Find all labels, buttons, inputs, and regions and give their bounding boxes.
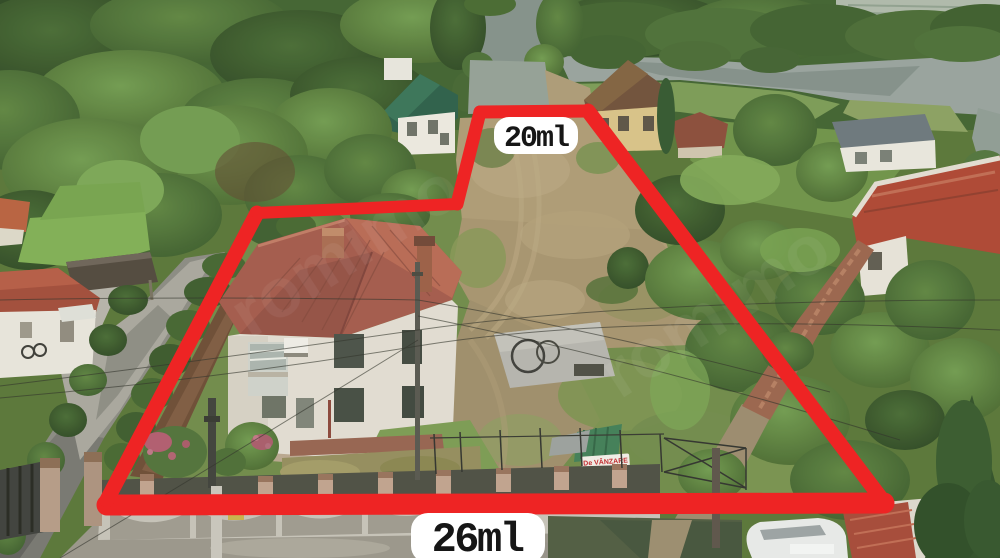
svg-text:20ml: 20ml [504, 122, 569, 156]
svg-text:26ml: 26ml [432, 516, 524, 558]
